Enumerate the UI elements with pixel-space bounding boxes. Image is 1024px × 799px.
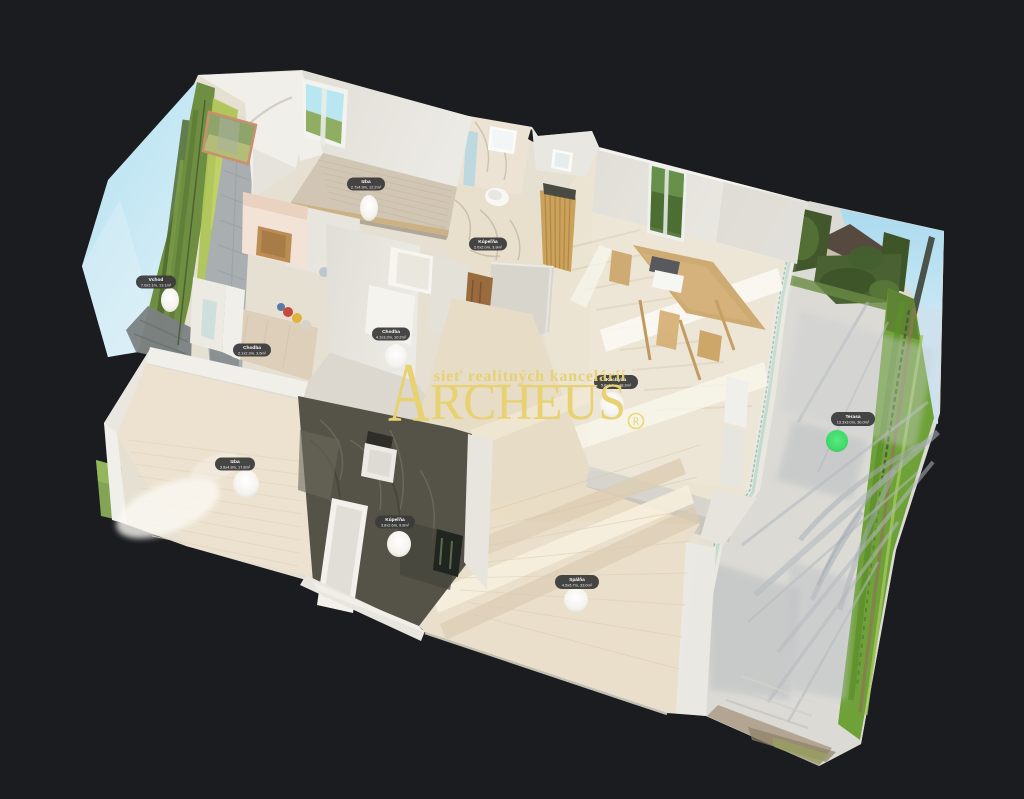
svg-text:2.7x4.9m, 12.2m²: 2.7x4.9m, 12.2m² <box>351 184 382 189</box>
svg-text:4.5x5.7m, 33.0m²: 4.5x5.7m, 33.0m² <box>562 582 593 587</box>
svg-text:A: A <box>388 346 430 440</box>
svg-text:3.8x4.8m, 17.8m²: 3.8x4.8m, 17.8m² <box>220 464 251 469</box>
svg-text:4.1x3.2m, 10.2m²: 4.1x3.2m, 10.2m² <box>376 334 407 339</box>
svg-text:2.0x2.0m, 3.9m²: 2.0x2.0m, 3.9m² <box>474 244 503 249</box>
svg-text:3.8x2.6m, 9.8m²: 3.8x2.6m, 9.8m² <box>381 522 410 527</box>
svg-text:7.0x2.1m, 13.1m²: 7.0x2.1m, 13.1m² <box>141 282 172 287</box>
svg-text:R: R <box>633 417 640 428</box>
svg-text:RCHEUS: RCHEUS <box>430 374 626 431</box>
svg-text:2.1x2.3m, 3.6m²: 2.1x2.3m, 3.6m² <box>238 350 267 355</box>
svg-text:13.3x3.0m, 30.0m²: 13.3x3.0m, 30.0m² <box>837 419 870 424</box>
